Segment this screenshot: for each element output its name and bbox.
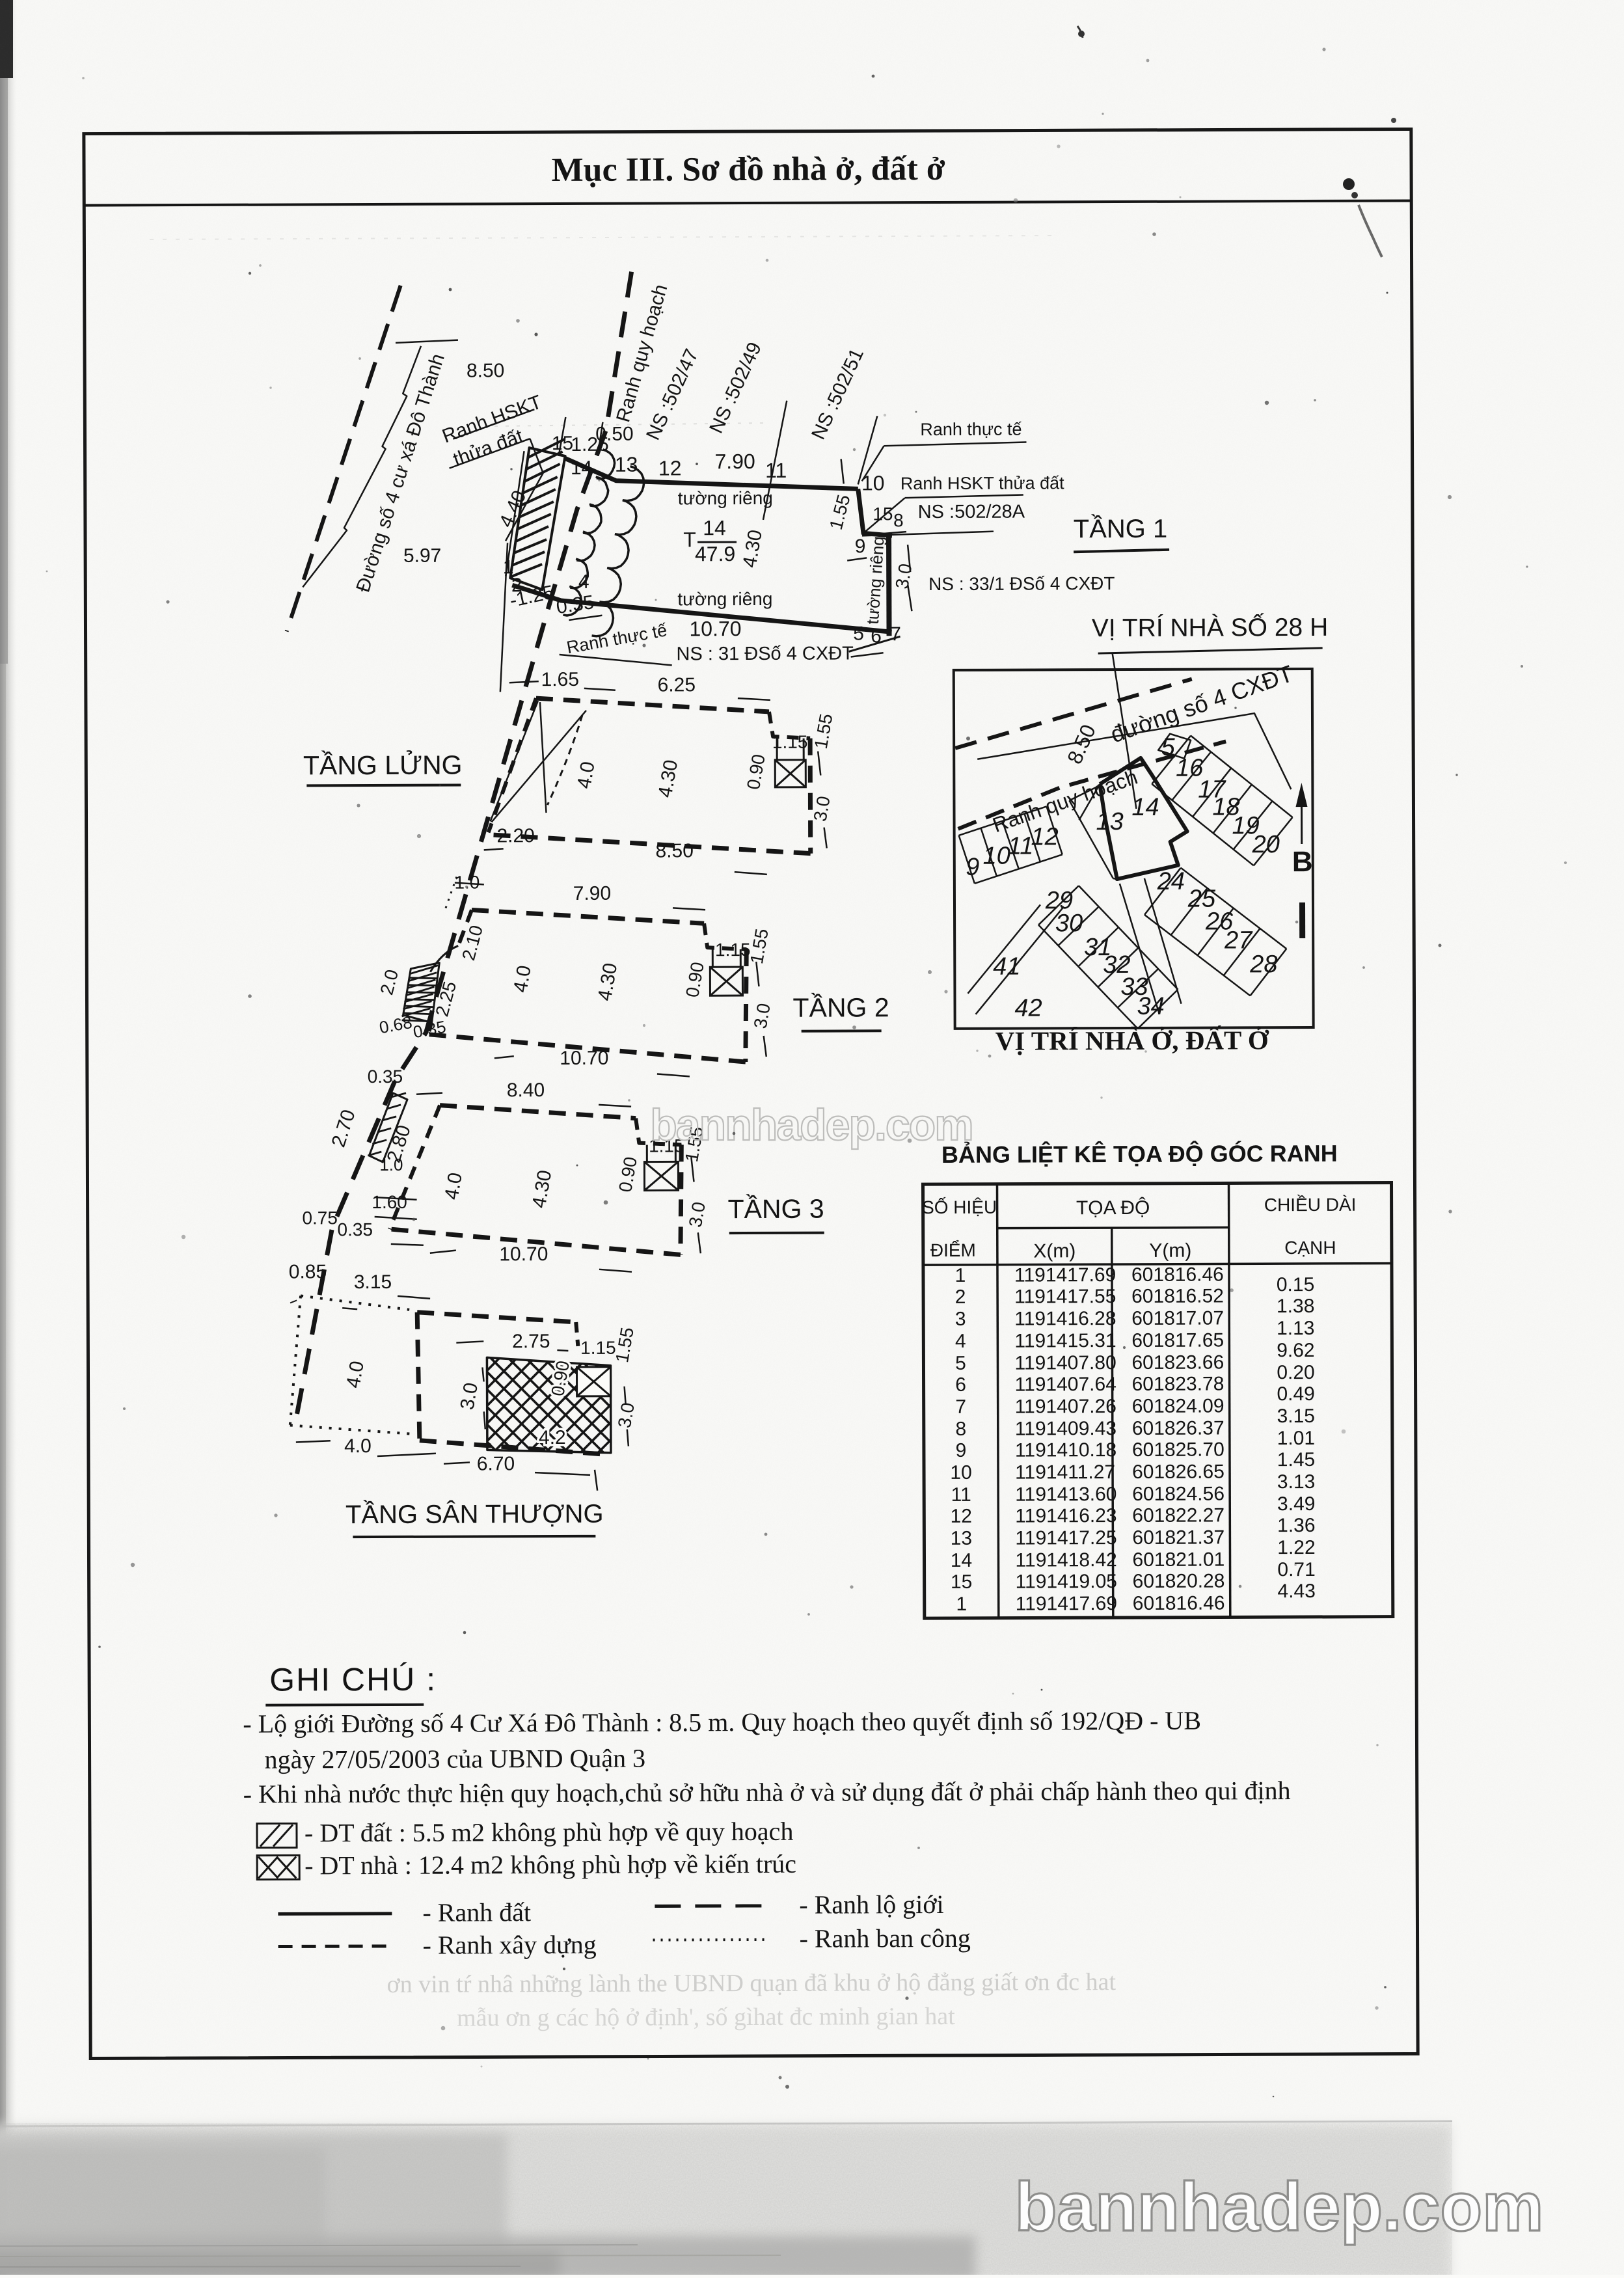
svg-text:X(m): X(m) xyxy=(1033,1240,1076,1262)
svg-text:24: 24 xyxy=(1157,868,1185,895)
svg-text:601816.46: 601816.46 xyxy=(1133,1592,1225,1614)
svg-text:VỊ TRÍ NHÀ SỐ 28 H: VỊ TRÍ NHÀ SỐ 28 H xyxy=(1092,612,1329,642)
svg-text:1.15: 1.15 xyxy=(772,732,808,752)
svg-text:0.35: 0.35 xyxy=(337,1219,373,1240)
svg-text:- Lộ giới Đường số 4 Cư Xá Đô: - Lộ giới Đường số 4 Cư Xá Đô Thành : 8.… xyxy=(243,1706,1201,1739)
svg-text:bannhadep.com: bannhadep.com xyxy=(1015,2169,1544,2245)
svg-text:4.43: 4.43 xyxy=(1277,1580,1316,1602)
svg-text:2: 2 xyxy=(955,1286,966,1308)
svg-text:3.0: 3.0 xyxy=(685,1200,709,1229)
svg-text:12: 12 xyxy=(1031,823,1058,850)
svg-text:3.0: 3.0 xyxy=(456,1381,482,1412)
svg-text:10: 10 xyxy=(861,471,885,495)
svg-text:1191407.80: 1191407.80 xyxy=(1014,1352,1116,1374)
svg-text:0.75: 0.75 xyxy=(302,1208,338,1228)
svg-text:3.0: 3.0 xyxy=(750,1001,774,1030)
svg-text:4.0: 4.0 xyxy=(573,760,599,791)
svg-text:3.15: 3.15 xyxy=(1277,1405,1315,1427)
svg-text:1191417.69: 1191417.69 xyxy=(1014,1264,1116,1286)
svg-text:1.15: 1.15 xyxy=(580,1338,616,1358)
svg-text:SỐ HIỆU: SỐ HIỆU xyxy=(922,1197,997,1217)
svg-text:1.13: 1.13 xyxy=(1277,1318,1315,1339)
svg-text:4.2: 4.2 xyxy=(539,1427,566,1448)
svg-text:6: 6 xyxy=(955,1374,966,1396)
svg-text:20: 20 xyxy=(1251,831,1279,858)
svg-text:5.97: 5.97 xyxy=(403,545,442,567)
svg-text:41: 41 xyxy=(993,953,1020,981)
svg-text:27: 27 xyxy=(1224,927,1253,954)
svg-text:1191416.23: 1191416.23 xyxy=(1015,1505,1116,1527)
svg-text:3.0: 3.0 xyxy=(614,1401,638,1430)
svg-text:1.0: 1.0 xyxy=(454,872,480,892)
svg-text:9: 9 xyxy=(966,854,979,881)
svg-text:11: 11 xyxy=(765,459,787,482)
svg-text:9: 9 xyxy=(855,536,866,557)
svg-text:1191417.25: 1191417.25 xyxy=(1015,1527,1116,1549)
svg-text:11: 11 xyxy=(1008,832,1034,860)
svg-text:bannhadep.com: bannhadep.com xyxy=(650,1100,972,1150)
svg-text:1191409.43: 1191409.43 xyxy=(1015,1418,1116,1440)
svg-text:NS : 31 ĐSố 4 CXĐT: NS : 31 ĐSố 4 CXĐT xyxy=(676,643,854,664)
svg-text:3.49: 3.49 xyxy=(1277,1493,1316,1515)
svg-text:601824.56: 601824.56 xyxy=(1132,1483,1225,1504)
svg-text:0.35: 0.35 xyxy=(368,1066,403,1087)
svg-text:15: 15 xyxy=(951,1571,972,1593)
svg-text:34: 34 xyxy=(1137,993,1164,1020)
svg-text:4.0: 4.0 xyxy=(509,964,535,994)
svg-text:1.45: 1.45 xyxy=(1277,1449,1316,1471)
svg-text:ơn vin tŕ nhâ những lành the U: ơn vin tŕ nhâ những lành the UBND quạn đ… xyxy=(387,1968,1116,1998)
svg-text:4: 4 xyxy=(955,1331,966,1352)
svg-text:Ranh HSKT thửa đất: Ranh HSKT thửa đất xyxy=(900,473,1064,493)
svg-text:6: 6 xyxy=(871,625,882,647)
svg-text:ĐIỂM: ĐIỂM xyxy=(930,1240,976,1260)
svg-text:0.85: 0.85 xyxy=(289,1261,327,1282)
svg-text:- DT nhà : 12.4 m2 không phù h: - DT nhà : 12.4 m2 không phù hợp về kiến… xyxy=(304,1849,796,1880)
svg-text:4.0: 4.0 xyxy=(342,1359,368,1390)
svg-text:601825.70: 601825.70 xyxy=(1132,1439,1225,1460)
svg-text:1191417.55: 1191417.55 xyxy=(1014,1286,1116,1308)
svg-text:30: 30 xyxy=(1055,910,1083,937)
svg-text:1.01: 1.01 xyxy=(1277,1428,1316,1449)
svg-text:- Ranh xây dựng: - Ranh xây dựng xyxy=(422,1930,596,1960)
svg-text:12: 12 xyxy=(951,1506,972,1527)
svg-text:1.15: 1.15 xyxy=(715,940,751,960)
svg-text:TỌA ĐỘ: TỌA ĐỘ xyxy=(1076,1197,1150,1219)
svg-text:601817.07: 601817.07 xyxy=(1131,1307,1224,1329)
svg-text:14: 14 xyxy=(951,1550,972,1571)
svg-text:3.0: 3.0 xyxy=(810,794,834,823)
svg-text:10: 10 xyxy=(983,843,1010,870)
svg-text:0.20: 0.20 xyxy=(1277,1362,1315,1383)
svg-text:5: 5 xyxy=(1161,734,1176,761)
svg-text:8.50: 8.50 xyxy=(467,360,505,381)
svg-text:14: 14 xyxy=(703,516,726,539)
svg-text:Y(m): Y(m) xyxy=(1149,1240,1191,1262)
svg-text:NS : 33/1 ĐSố 4 CXĐT: NS : 33/1 ĐSố 4 CXĐT xyxy=(928,573,1115,594)
svg-text:47.9: 47.9 xyxy=(695,542,735,565)
svg-text:601821.37: 601821.37 xyxy=(1132,1526,1225,1548)
svg-text:VỊ TRÍ NHÀ Ở, ĐẤT Ở: VỊ TRÍ NHÀ Ở, ĐẤT Ở xyxy=(995,1025,1269,1055)
svg-text:TẦNG 1: TẦNG 1 xyxy=(1074,513,1168,544)
svg-text:mẫu ơn g các hộ ở định', số gì: mẫu ơn g các hộ ở định', số gìhat đc min… xyxy=(457,2003,955,2032)
svg-text:6.25: 6.25 xyxy=(658,674,696,696)
svg-text:4.0: 4.0 xyxy=(344,1435,372,1457)
svg-text:1.65: 1.65 xyxy=(541,669,580,690)
svg-text:ngày 27/05/2003 của UBND Quận: ngày 27/05/2003 của UBND Quận 3 xyxy=(264,1744,645,1774)
svg-text:1191407.64: 1191407.64 xyxy=(1015,1374,1116,1396)
svg-text:1.0: 1.0 xyxy=(379,1155,403,1174)
svg-text:601816.52: 601816.52 xyxy=(1131,1285,1224,1307)
svg-text:5: 5 xyxy=(853,623,864,644)
svg-text:TẦNG SÂN THƯỢNG: TẦNG SÂN THƯỢNG xyxy=(345,1498,604,1529)
svg-text:2.20: 2.20 xyxy=(496,825,535,847)
svg-text:1191410.18: 1191410.18 xyxy=(1015,1439,1116,1461)
svg-text:B: B xyxy=(1292,846,1313,878)
svg-text:8: 8 xyxy=(955,1418,966,1440)
svg-text:7: 7 xyxy=(890,623,901,645)
svg-text:0.50: 0.50 xyxy=(595,424,634,445)
svg-text:1: 1 xyxy=(955,1265,966,1286)
svg-text:1191407.26: 1191407.26 xyxy=(1015,1396,1116,1418)
svg-text:601826.37: 601826.37 xyxy=(1132,1417,1225,1439)
svg-text:1191418.42: 1191418.42 xyxy=(1015,1549,1116,1571)
svg-text:BẢNG LIỆT KÊ TỌA ĐỘ GÓC RANH: BẢNG LIỆT KÊ TỌA ĐỘ GÓC RANH xyxy=(941,1139,1338,1168)
svg-text:TẦNG LỬNG: TẦNG LỬNG xyxy=(303,750,463,781)
svg-text:1191416.28: 1191416.28 xyxy=(1014,1308,1116,1330)
svg-text:3.0: 3.0 xyxy=(891,562,915,591)
svg-text:0.71: 0.71 xyxy=(1277,1559,1316,1580)
svg-text:1.38: 1.38 xyxy=(1277,1295,1315,1317)
svg-text:13: 13 xyxy=(1096,808,1123,835)
svg-text:601823.66: 601823.66 xyxy=(1131,1351,1224,1373)
svg-text:12: 12 xyxy=(658,456,682,480)
svg-text:1.22: 1.22 xyxy=(1277,1537,1316,1558)
svg-text:- Ranh ban công: - Ranh ban công xyxy=(799,1923,970,1953)
svg-text:10.70: 10.70 xyxy=(499,1243,548,1265)
svg-text:9: 9 xyxy=(956,1440,967,1461)
svg-text:Mục III. Sơ đồ nhà ở, đất ở: Mục III. Sơ đồ nhà ở, đất ở xyxy=(551,150,945,189)
svg-text:tường riêng: tường riêng xyxy=(678,488,773,509)
svg-text:601826.65: 601826.65 xyxy=(1132,1461,1225,1482)
svg-text:601816.46: 601816.46 xyxy=(1131,1264,1224,1285)
svg-text:- Khi nhà nước thực hiện quy h: - Khi nhà nước thực hiện quy hoạch,chủ s… xyxy=(243,1776,1291,1809)
svg-text:10.70: 10.70 xyxy=(689,617,741,640)
svg-text:- Ranh lộ giới: - Ranh lộ giới xyxy=(799,1890,943,1919)
svg-text:TẦNG 2: TẦNG 2 xyxy=(792,992,889,1023)
svg-text:GHI CHÚ :: GHI CHÚ : xyxy=(269,1661,437,1698)
svg-text:CHIỀU DÀI: CHIỀU DÀI xyxy=(1264,1195,1357,1215)
svg-text:1191417.69: 1191417.69 xyxy=(1016,1593,1117,1615)
svg-text:TẦNG 3: TẦNG 3 xyxy=(728,1194,824,1225)
svg-text:Ranh thực tế: Ranh thực tế xyxy=(920,420,1022,440)
svg-text:7: 7 xyxy=(955,1396,966,1418)
svg-text:15: 15 xyxy=(873,504,893,524)
svg-text:4: 4 xyxy=(578,571,589,593)
svg-text:14: 14 xyxy=(571,457,592,479)
svg-text:7.90: 7.90 xyxy=(573,883,612,904)
svg-text:14: 14 xyxy=(1131,794,1159,821)
svg-text:13: 13 xyxy=(951,1528,972,1549)
svg-text:28: 28 xyxy=(1249,951,1277,978)
svg-text:1191413.60: 1191413.60 xyxy=(1015,1484,1116,1506)
svg-text:1191411.27: 1191411.27 xyxy=(1015,1461,1115,1484)
svg-text:42: 42 xyxy=(1014,994,1042,1022)
svg-text:601822.27: 601822.27 xyxy=(1132,1504,1225,1526)
svg-text:3.15: 3.15 xyxy=(354,1271,392,1293)
svg-text:11: 11 xyxy=(951,1484,971,1506)
svg-text:13: 13 xyxy=(615,453,638,476)
svg-text:15: 15 xyxy=(552,433,573,454)
svg-text:1191419.05: 1191419.05 xyxy=(1016,1571,1117,1593)
svg-text:10: 10 xyxy=(950,1462,971,1484)
svg-text:8: 8 xyxy=(893,510,904,530)
svg-text:6.70: 6.70 xyxy=(477,1453,515,1474)
svg-text:1: 1 xyxy=(956,1593,967,1615)
svg-text:NS :502/28A: NS :502/28A xyxy=(918,502,1025,523)
svg-text:3.13: 3.13 xyxy=(1277,1471,1316,1493)
svg-text:601817.65: 601817.65 xyxy=(1131,1329,1224,1351)
svg-text:0.49: 0.49 xyxy=(1277,1383,1315,1405)
svg-text:1191415.31: 1191415.31 xyxy=(1014,1330,1116,1352)
svg-text:1.60: 1.60 xyxy=(372,1192,407,1212)
svg-text:601824.09: 601824.09 xyxy=(1132,1395,1225,1417)
svg-text:10.70: 10.70 xyxy=(560,1048,608,1069)
svg-text:7.90: 7.90 xyxy=(714,450,755,473)
svg-text:5: 5 xyxy=(955,1353,966,1374)
svg-text:9.62: 9.62 xyxy=(1277,1340,1315,1361)
svg-text:0.15: 0.15 xyxy=(1277,1274,1315,1295)
svg-text:tường riêng: tường riêng xyxy=(677,589,772,610)
svg-text:CẠNH: CẠNH xyxy=(1284,1238,1336,1258)
svg-text:- DT đất : 5.5 m2 không phù hợ: - DT đất : 5.5 m2 không phù hợp về quy h… xyxy=(304,1817,794,1848)
svg-text:T: T xyxy=(683,528,696,551)
svg-text:1.36: 1.36 xyxy=(1277,1515,1316,1536)
svg-text:601821.01: 601821.01 xyxy=(1132,1549,1225,1570)
svg-text:4.0: 4.0 xyxy=(440,1171,467,1202)
svg-text:601820.28: 601820.28 xyxy=(1133,1570,1225,1592)
svg-text:8.40: 8.40 xyxy=(507,1079,545,1101)
svg-text:601823.78: 601823.78 xyxy=(1132,1373,1225,1394)
svg-text:3: 3 xyxy=(955,1308,966,1330)
svg-text:8.50: 8.50 xyxy=(655,840,694,861)
svg-text:2.75: 2.75 xyxy=(512,1331,550,1352)
svg-text:- Ranh đất: - Ranh đất xyxy=(422,1897,531,1927)
